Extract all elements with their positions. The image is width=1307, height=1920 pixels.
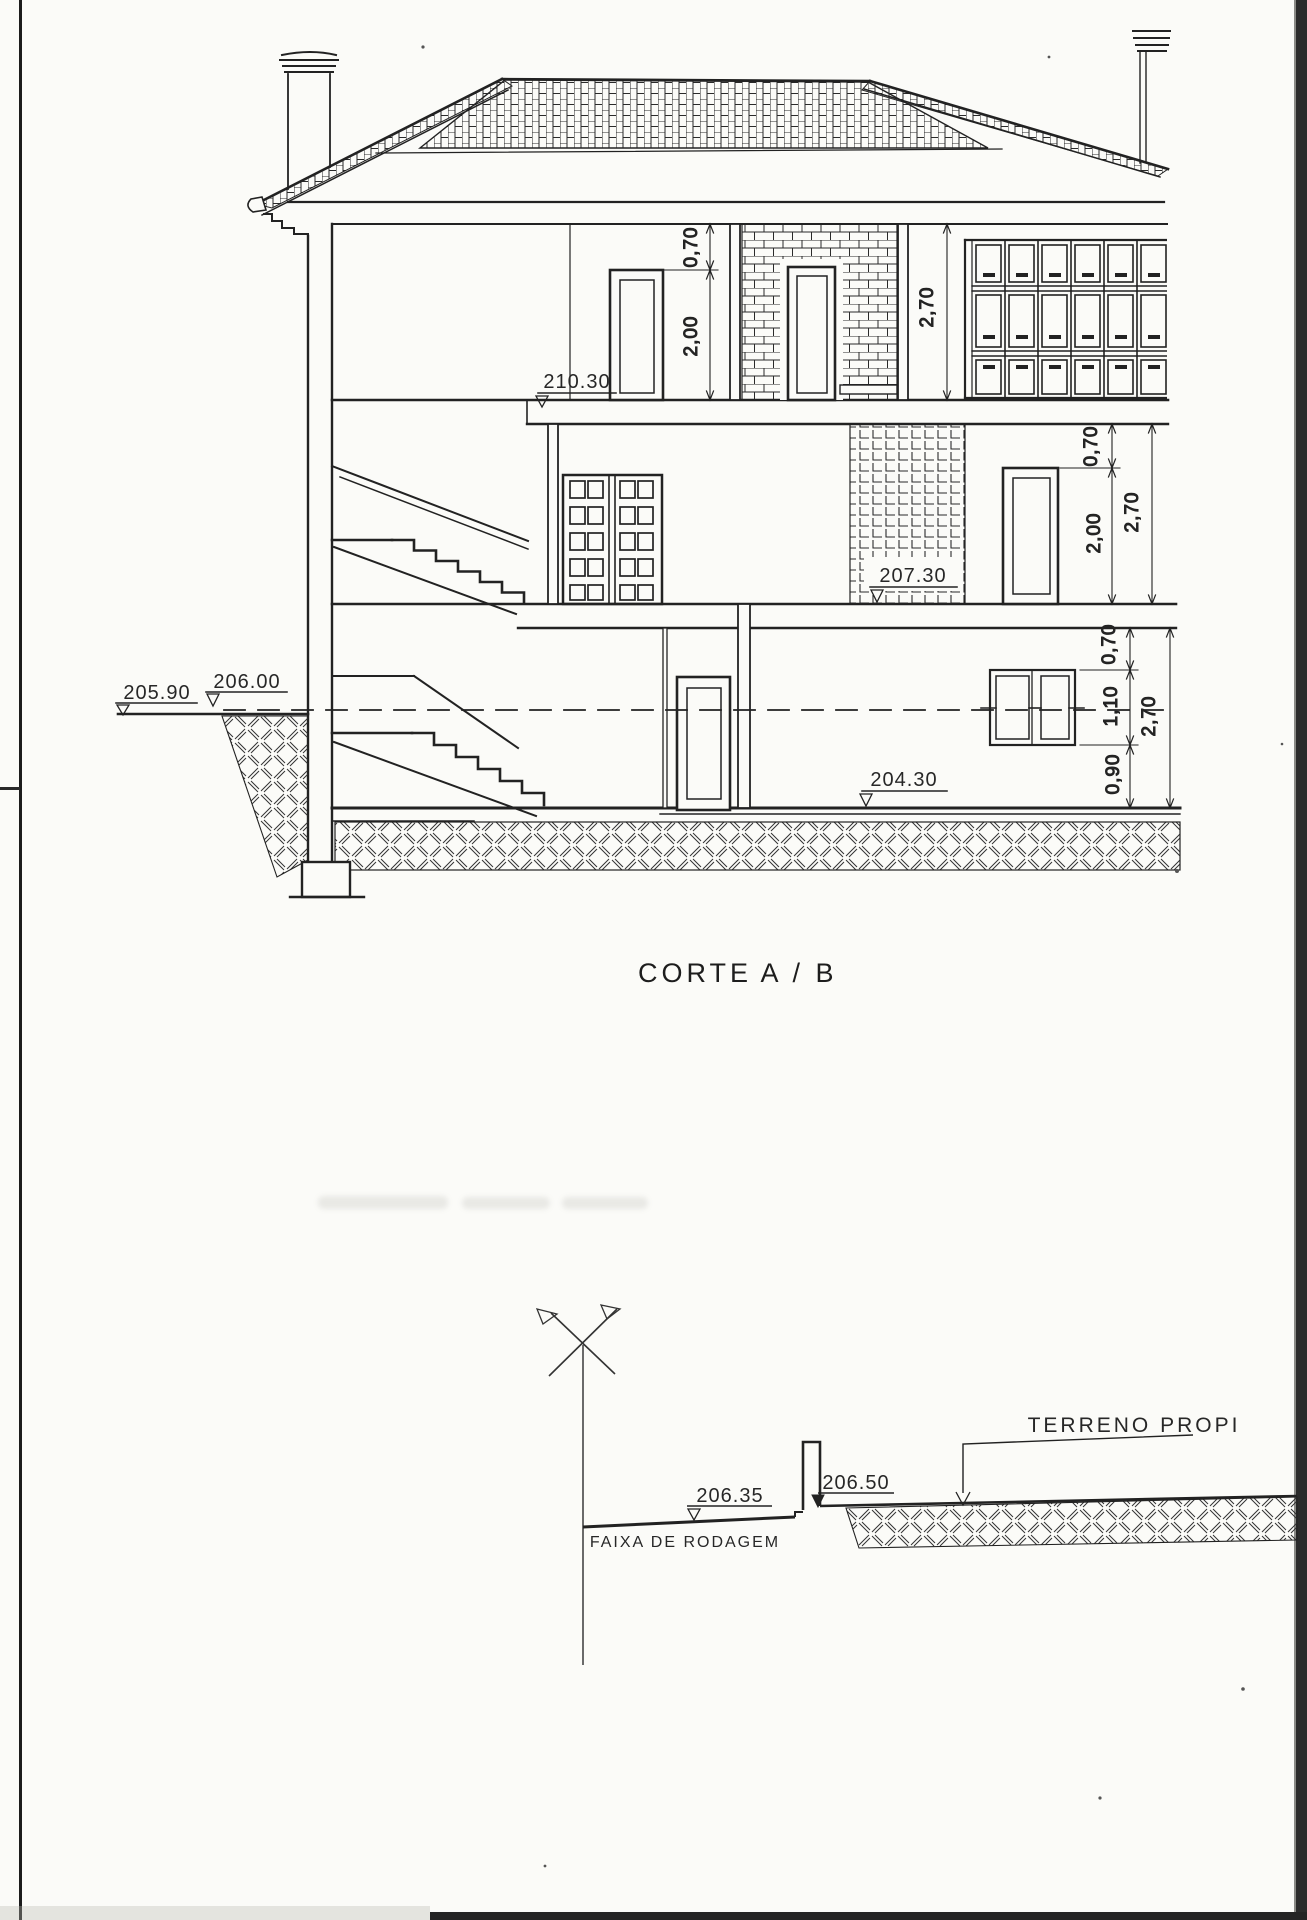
left-border-line <box>19 0 22 1920</box>
curb-step <box>795 1512 803 1517</box>
level-206-50: 206.50 <box>812 1472 894 1507</box>
stair-stringer-low <box>334 742 536 816</box>
chimney-right <box>1133 31 1170 163</box>
wall-2f-right-of-panel <box>898 224 908 400</box>
window-grid-2f <box>965 240 1170 398</box>
survey-cross <box>537 1305 620 1665</box>
dim-0f: 0,70 1,10 0,90 2,70 <box>1080 624 1174 808</box>
profile-drawing: 206.35 206.50 FAIXA DE RODAGEM TERRENO P… <box>537 1305 1297 1665</box>
wall-0f-stair <box>738 604 750 808</box>
ground-wedge-hatch <box>222 716 308 877</box>
door-2f-left-frame <box>610 270 663 400</box>
door-0f-frame <box>677 677 730 810</box>
terrain-label-group: TERRENO PROPI <box>956 1414 1240 1505</box>
gutter-end <box>248 197 266 212</box>
door-2f-panel-frame <box>788 267 835 400</box>
dim-0f-window: 1,10 <box>1101 686 1122 727</box>
level-206-00: 206.00 <box>206 671 287 706</box>
footing-block <box>302 862 350 897</box>
wall-1f-stair <box>548 424 558 604</box>
level-206-35: 206.35 <box>687 1485 772 1520</box>
terrain <box>118 710 1180 897</box>
bottom-scan-shadow <box>0 1906 430 1920</box>
level-205-90-text: 205.90 <box>123 682 190 704</box>
dim-0f-storey: 2,70 <box>1139 696 1160 737</box>
roof-underside-line <box>376 149 1002 153</box>
level-206-00-text: 206.00 <box>213 671 280 693</box>
terrain-leader-line <box>963 1435 1193 1493</box>
dim-1f-window: 2,00 <box>1084 513 1105 554</box>
panel-sill-ledge <box>840 385 897 394</box>
bottom-scan-band <box>430 1912 1307 1920</box>
dim-2f-door: 2,00 <box>681 316 702 357</box>
dim-0f-lintel: 0,70 <box>1099 624 1120 665</box>
stairwell-ceiling-slope <box>414 676 518 748</box>
eave-corbel <box>264 214 308 234</box>
dim-0f-sill: 0,90 <box>1103 754 1124 795</box>
chimney-right-cap <box>1133 31 1170 51</box>
level-206-35-text: 206.35 <box>696 1485 763 1507</box>
dim-1f-lintel: 0,70 <box>1081 426 1102 467</box>
left-border-tick <box>0 787 20 790</box>
stair-rail-upper-b <box>340 477 528 549</box>
window-0f <box>981 670 1084 745</box>
section-drawing: 0,70 2,00 2,70 0,70 2,00 2,70 <box>116 31 1180 897</box>
level-210-30: 210.30 <box>536 371 616 407</box>
level-210-30-text: 210.30 <box>543 371 610 393</box>
dim-1f: 0,70 2,00 2,70 <box>1060 424 1156 604</box>
level-204-30: 204.30 <box>860 769 947 806</box>
lattice-window-1f <box>563 475 662 604</box>
wall-2f-left-of-panel <box>730 224 740 400</box>
roof <box>248 79 1168 234</box>
level-207-30-text: 207.30 <box>879 565 946 587</box>
scanned-drawing-page: 0,70 2,00 2,70 0,70 2,00 2,70 <box>0 0 1307 1920</box>
dim-2f-lintel: 0,70 <box>681 227 702 268</box>
stair-rail-upper-a <box>332 466 528 541</box>
level-205-90: 205.90 <box>116 682 197 715</box>
stairs <box>332 466 544 821</box>
level-206-50-text: 206.50 <box>822 1472 889 1494</box>
wall-0f-thin <box>663 628 667 808</box>
drawing-title: CORTE A / B <box>638 958 838 988</box>
title-suffix: A / B <box>760 958 837 988</box>
foundation-hatch-band <box>335 822 1180 870</box>
level-204-30-text: 204.30 <box>870 769 937 791</box>
title-main: CORTE <box>638 958 752 988</box>
bleed-through-text <box>318 1196 648 1209</box>
dim-2f-storey: 2,70 <box>917 287 938 328</box>
dim-1f-storey: 2,70 <box>1122 492 1143 533</box>
right-scan-band <box>1296 0 1307 1920</box>
right-scan-band-inner <box>1294 0 1296 1920</box>
road-label: FAIXA DE RODAGEM <box>590 1534 780 1551</box>
terrain-label: TERRENO PROPI <box>1028 1414 1241 1437</box>
first-floor <box>563 424 1058 604</box>
road-surface-line <box>583 1517 795 1527</box>
chimney-left-cap <box>280 52 338 72</box>
